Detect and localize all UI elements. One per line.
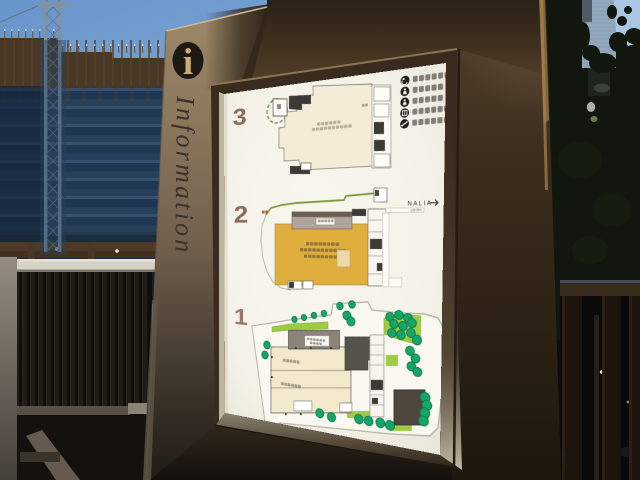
svg-text:2: 2 <box>234 201 249 228</box>
svg-text:Information: Information <box>169 95 200 256</box>
svg-text:garden: garden <box>411 207 423 213</box>
svg-text:i: i <box>183 42 193 83</box>
svg-text:3: 3 <box>233 103 247 131</box>
svg-text:NALIA: NALIA <box>407 199 432 207</box>
svg-text:1: 1 <box>234 304 248 330</box>
